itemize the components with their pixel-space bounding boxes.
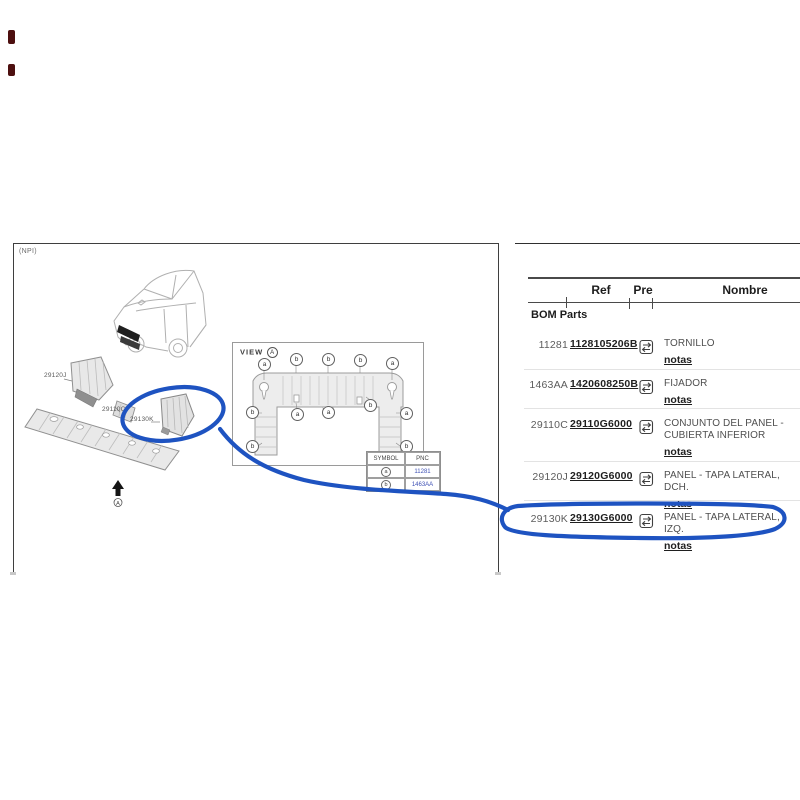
table-top-rule [528, 277, 800, 279]
direction-marker-letter-svg: A [116, 501, 120, 507]
part-label: 29120J [44, 372, 67, 379]
name-cell: PANEL - TAPA LATERAL, IZQ. notas [664, 512, 800, 554]
symbol-pnc-table: SYMBOL PNC a 11281 b 1463AA [366, 451, 441, 492]
callout-marker: b [364, 399, 377, 412]
callout-marker: b [246, 406, 259, 419]
diagram-panel: (NPI) [13, 243, 499, 574]
notas-link[interactable]: notas [664, 394, 692, 406]
header-underline [528, 302, 800, 303]
name-cell: PANEL - TAPA LATERAL, DCH. notas [664, 470, 800, 512]
part-29120j-drawing [71, 357, 113, 407]
name-cell: FIJADOR notas [664, 378, 800, 408]
part-number-link[interactable]: 1128105206B [570, 338, 636, 350]
column-tick [629, 298, 630, 309]
row-separator [524, 369, 800, 370]
part-label: 29130K [130, 416, 154, 423]
ref-code: 29130K [528, 512, 568, 525]
swap-arrows-icon[interactable] [638, 512, 656, 530]
part-name: PANEL - TAPA LATERAL, DCH. [664, 470, 800, 494]
table-row: 29110C 29110G6000 CONJUNTO DEL PANEL - C… [528, 418, 800, 460]
parts-catalog-page: (NPI) [0, 0, 800, 800]
part-number-link[interactable]: 29130G6000 [570, 512, 636, 524]
table-row: 1463AA 1420608250B FIJADOR notas [528, 378, 800, 408]
name-cell: CONJUNTO DEL PANEL - CUBIERTA INFERIOR n… [664, 418, 800, 460]
callout-marker: a [258, 358, 271, 371]
part-name: TORNILLO [664, 338, 800, 350]
border-endcap [495, 572, 501, 575]
ref-code: 29120J [528, 470, 568, 483]
part-label: 29110C [102, 406, 126, 413]
symbol-header: SYMBOL [367, 452, 405, 465]
ref-code: 11281 [528, 338, 568, 351]
table-row: 29120J 29120G6000 PANEL - TAPA LATERAL, … [528, 470, 800, 512]
callout-marker: b [322, 353, 335, 366]
part-name: PANEL - TAPA LATERAL, IZQ. [664, 512, 800, 536]
part-name: CONJUNTO DEL PANEL - CUBIERTA INFERIOR [664, 418, 800, 442]
pnc-header: PNC [405, 452, 440, 465]
callout-marker: a [386, 357, 399, 370]
table-row-highlighted: 29130K 29130G6000 PANEL - TAPA LATERAL, … [528, 512, 800, 554]
callout-marker: a [291, 408, 304, 421]
notas-link[interactable]: notas [664, 446, 692, 458]
bom-parts-label: BOM Parts [531, 309, 587, 321]
corner-mark [8, 64, 15, 76]
swap-arrows-icon[interactable] [638, 470, 656, 488]
view-a-box: VIEWA a [232, 342, 424, 466]
column-tick [652, 298, 653, 309]
table-row: 11281 1128105206B TORNILLO notas [528, 338, 800, 368]
panel-divider-line [515, 243, 800, 244]
part-number-link[interactable]: 29110G6000 [570, 418, 636, 430]
swap-arrows-icon[interactable] [638, 378, 656, 396]
swap-arrows-icon[interactable] [638, 338, 656, 356]
swap-arrows-icon[interactable] [638, 418, 656, 436]
symbol-badge: b [381, 480, 391, 490]
ref-code: 1463AA [528, 378, 568, 391]
part-number-link[interactable]: 29120G6000 [570, 470, 636, 482]
part-29130k-drawing [161, 394, 194, 436]
column-header-pre: Pre [628, 283, 658, 297]
row-separator [524, 500, 800, 501]
callout-marker: a [322, 406, 335, 419]
callout-marker: b [354, 354, 367, 367]
column-header-ref: Ref [586, 283, 616, 297]
pnc-link[interactable]: 1463AA [405, 478, 440, 491]
ref-code: 29110C [528, 418, 568, 431]
notas-link[interactable]: notas [664, 540, 692, 552]
corner-mark [8, 30, 15, 44]
column-tick [566, 297, 567, 308]
notas-link[interactable]: notas [664, 354, 692, 366]
car-illustration [114, 270, 206, 357]
under-panel-drawing [25, 409, 179, 470]
column-header-nombre: Nombre [712, 283, 778, 297]
symbol-badge: a [381, 467, 391, 477]
part-name: FIJADOR [664, 378, 800, 390]
part-number-link[interactable]: 1420608250B [570, 378, 636, 390]
callout-marker: a [400, 407, 413, 420]
callout-marker: b [246, 440, 259, 453]
pnc-link[interactable]: 11281 [405, 465, 440, 478]
callout-marker: b [290, 353, 303, 366]
row-separator [524, 408, 800, 409]
border-endcap [10, 572, 16, 575]
row-separator [524, 461, 800, 462]
name-cell: TORNILLO notas [664, 338, 800, 368]
